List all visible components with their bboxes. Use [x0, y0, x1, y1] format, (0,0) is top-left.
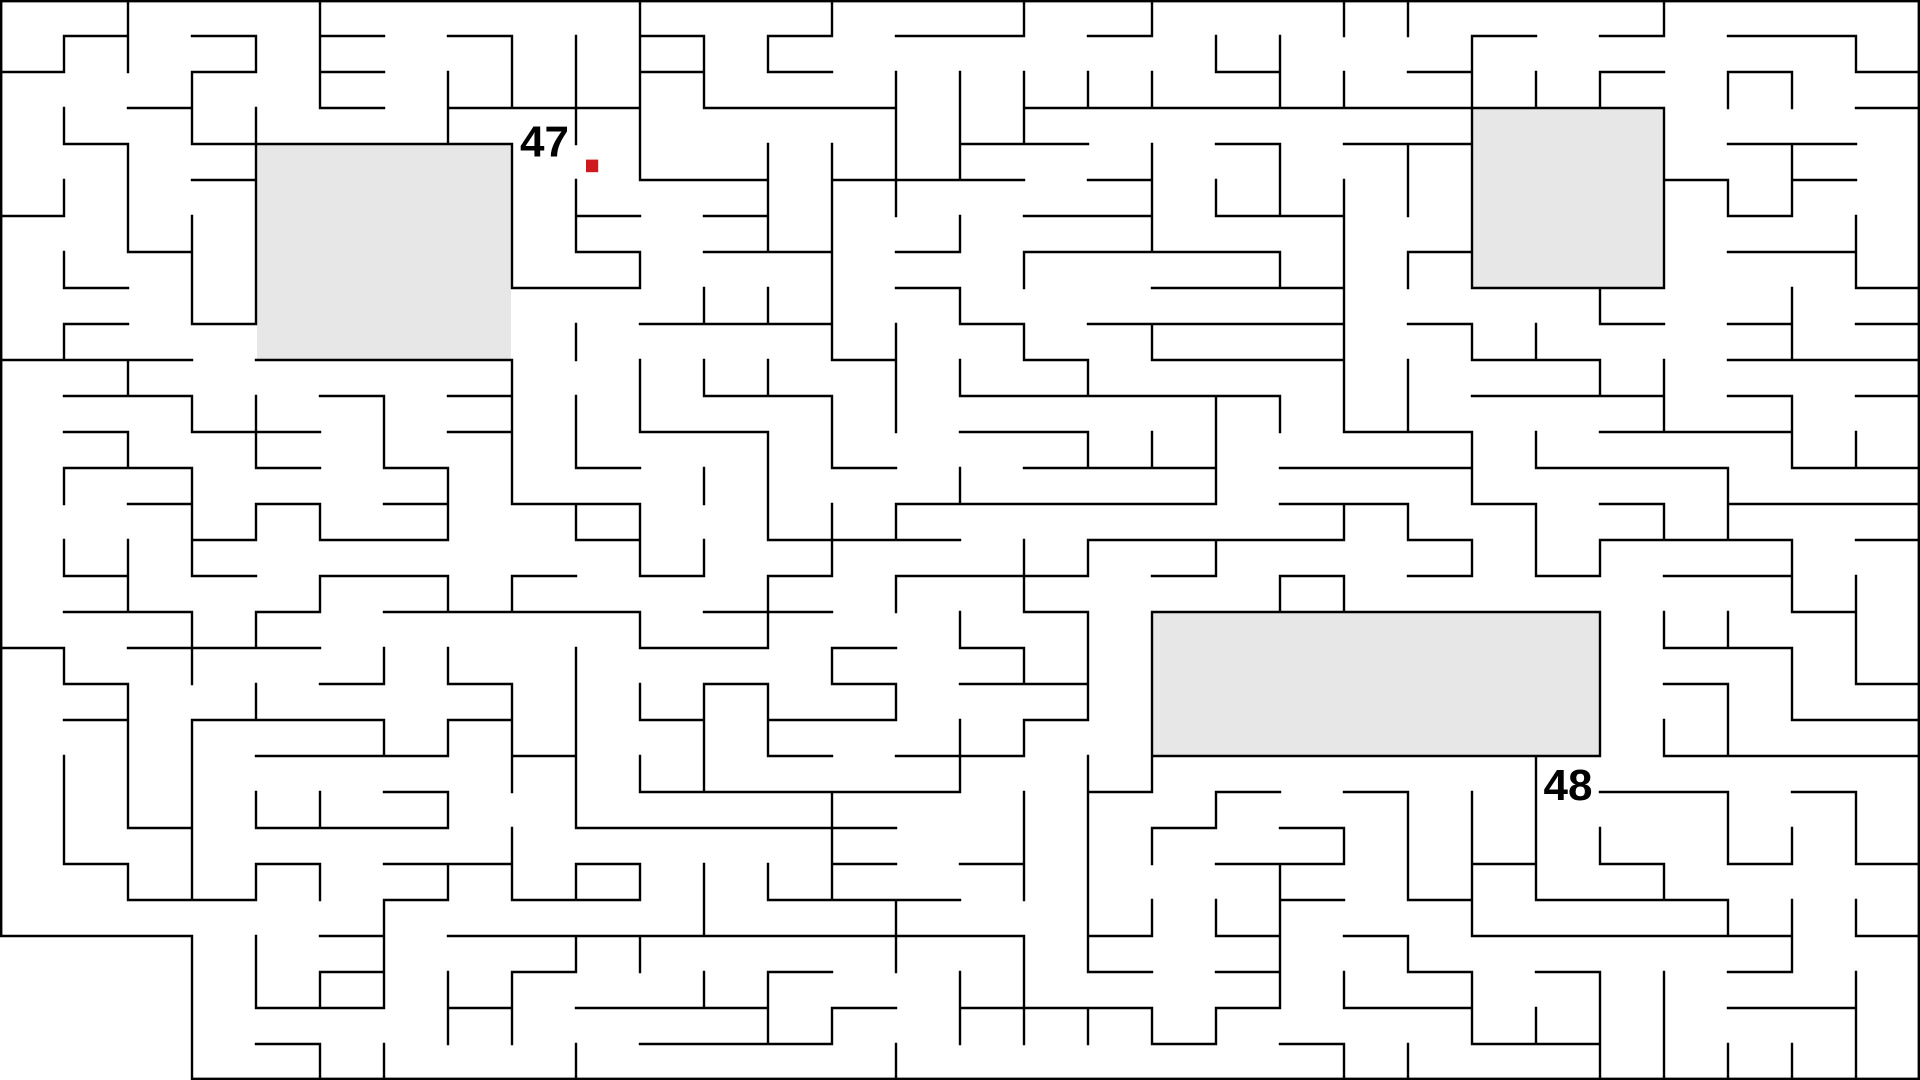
svg-text:48: 48: [1544, 761, 1593, 810]
svg-text:47: 47: [520, 118, 569, 167]
